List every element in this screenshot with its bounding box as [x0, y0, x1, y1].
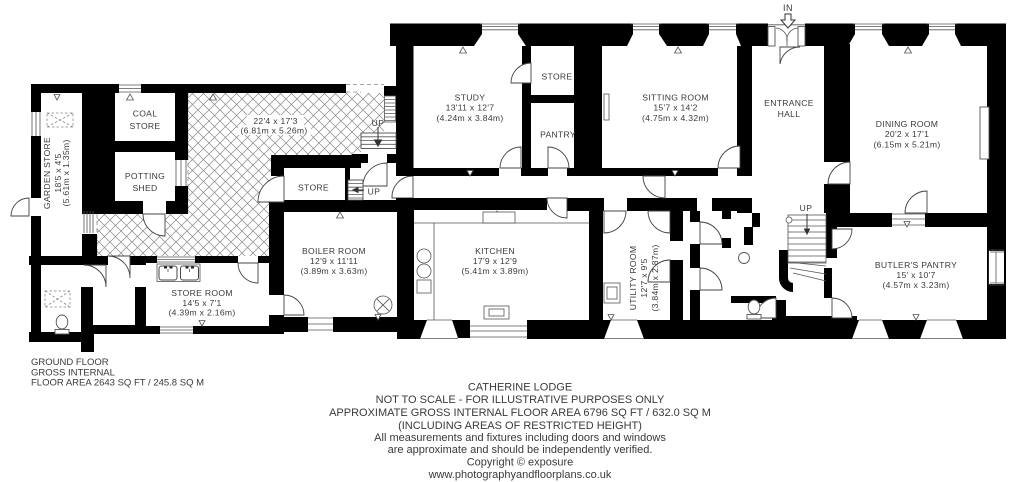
svg-text:UP: UP	[368, 187, 381, 197]
svg-text:SHED: SHED	[132, 183, 157, 193]
svg-text:BOILER ROOM: BOILER ROOM	[302, 246, 366, 256]
svg-text:15'7 x 14'2: 15'7 x 14'2	[653, 103, 697, 113]
svg-text:17'9 x 12'9: 17'9 x 12'9	[473, 256, 517, 266]
svg-text:UP: UP	[372, 118, 385, 128]
svg-text:COAL: COAL	[133, 109, 158, 119]
svg-text:STORE: STORE	[298, 183, 329, 193]
svg-text:are approximate and should be: are approximate and should be independen…	[388, 444, 653, 456]
svg-text:GROUND FLOOR: GROUND FLOOR	[31, 357, 109, 368]
svg-text:KITCHEN: KITCHEN	[475, 246, 515, 256]
svg-text:www.photographyandfloorplans.c: www.photographyandfloorplans.co.uk	[428, 469, 612, 481]
svg-text:12'7 x 9'5: 12'7 x 9'5	[639, 258, 649, 297]
svg-text:STORE: STORE	[542, 72, 573, 82]
svg-text:14'5 x 7'1: 14'5 x 7'1	[182, 298, 221, 308]
svg-text:NOT TO SCALE - FOR ILLUSTRATIV: NOT TO SCALE - FOR ILLUSTRATIVE PURPOSES…	[376, 394, 665, 406]
svg-text:Copyright © exposure: Copyright © exposure	[467, 457, 574, 469]
svg-text:UTILITY ROOM: UTILITY ROOM	[628, 246, 638, 311]
svg-text:GARDEN STORE: GARDEN STORE	[42, 137, 52, 209]
svg-text:STUDY: STUDY	[455, 93, 486, 103]
svg-text:(3.89m x 3.63m): (3.89m x 3.63m)	[300, 266, 367, 276]
svg-text:20'2 x 17'1: 20'2 x 17'1	[885, 129, 929, 139]
svg-text:15' x 10'7: 15' x 10'7	[896, 270, 935, 280]
svg-text:CATHERINE LODGE: CATHERINE LODGE	[468, 382, 572, 394]
svg-text:(4.57m x 3.23m): (4.57m x 3.23m)	[882, 280, 949, 290]
svg-text:12'9 x 11'11: 12'9 x 11'11	[310, 256, 358, 266]
svg-text:POTTING: POTTING	[125, 171, 165, 181]
svg-text:SITTING ROOM: SITTING ROOM	[642, 93, 709, 103]
svg-text:APPROXIMATE GROSS INTERNAL FLO: APPROXIMATE GROSS INTERNAL FLOOR AREA 67…	[329, 407, 711, 419]
svg-text:(INCLUDING AREAS OF RESTRICTED: (INCLUDING AREAS OF RESTRICTED HEIGHT)	[398, 420, 642, 432]
svg-text:STORE: STORE	[130, 121, 161, 131]
svg-text:13'11 x 12'7: 13'11 x 12'7	[446, 103, 495, 113]
svg-text:BUTLER'S PANTRY: BUTLER'S PANTRY	[875, 260, 957, 270]
svg-text:UP: UP	[800, 203, 813, 213]
svg-text:All measurements and fixtures: All measurements and fixtures including …	[374, 432, 666, 444]
svg-text:IN: IN	[783, 3, 793, 13]
svg-text:STORE ROOM: STORE ROOM	[171, 288, 233, 298]
svg-text:FLOOR AREA 2643 SQ FT / 245.8: FLOOR AREA 2643 SQ FT / 245.8 SQ M	[31, 378, 204, 389]
svg-text:DINING ROOM: DINING ROOM	[876, 119, 939, 129]
svg-text:(6.81m x 5.26m): (6.81m x 5.26m)	[240, 126, 307, 136]
svg-text:ENTRANCE: ENTRANCE	[764, 98, 814, 108]
svg-text:22'4 x 17'3: 22'4 x 17'3	[253, 116, 297, 126]
svg-text:PANTRY: PANTRY	[540, 130, 576, 140]
svg-text:(6.15m x 5.21m): (6.15m x 5.21m)	[873, 139, 940, 149]
svg-text:(4.39m x 2.16m): (4.39m x 2.16m)	[168, 308, 235, 318]
svg-text:HALL: HALL	[778, 109, 801, 119]
svg-text:(3.84m x 2.87m): (3.84m x 2.87m)	[650, 244, 660, 311]
svg-text:(4.75m x 4.32m): (4.75m x 4.32m)	[642, 113, 709, 123]
svg-text:(5.61m x 1.35m): (5.61m x 1.35m)	[61, 139, 71, 206]
svg-text:(5.41m x 3.89m): (5.41m x 3.89m)	[461, 266, 528, 276]
svg-text:(4.24m x 3.84m): (4.24m x 3.84m)	[436, 113, 503, 123]
